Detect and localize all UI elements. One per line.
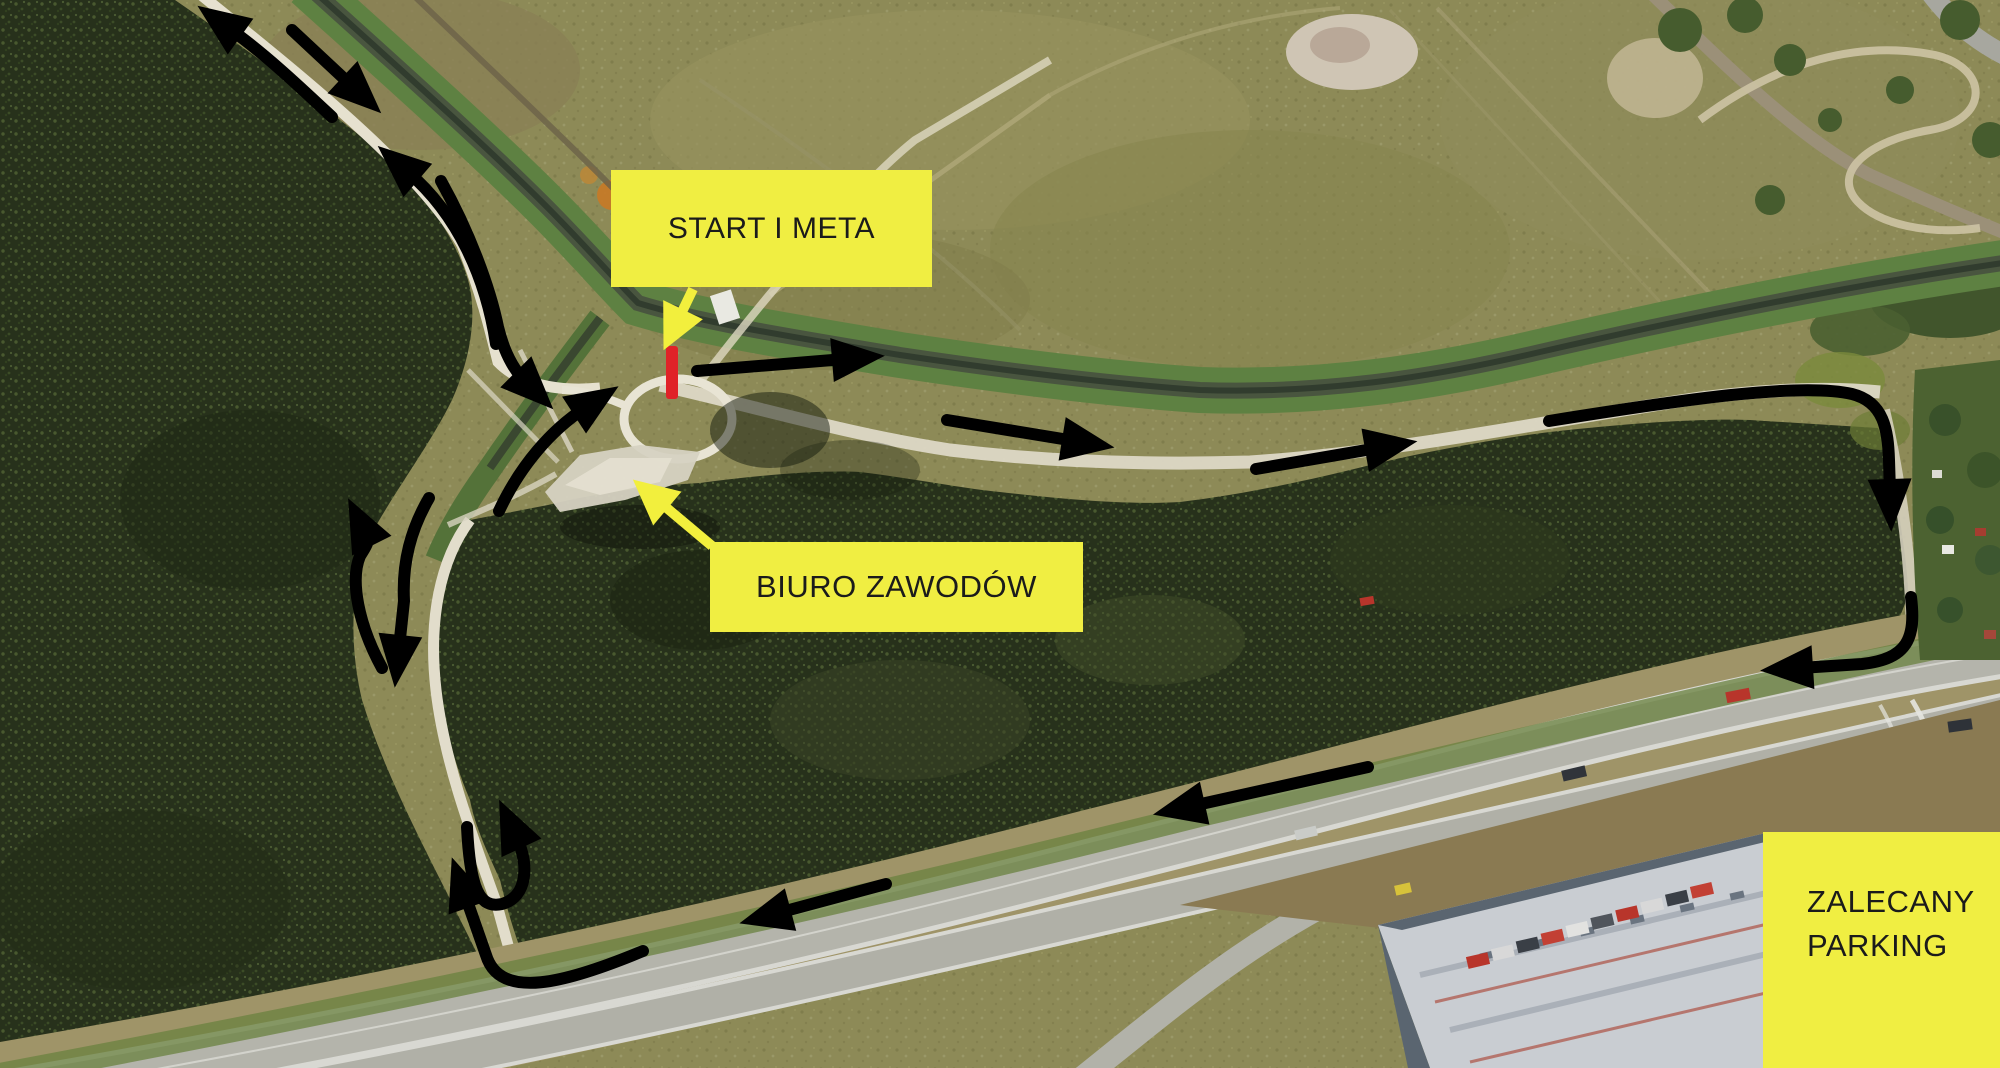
parking-label-line2: PARKING [1807, 924, 2000, 968]
parking-label-line1: ZALECANY [1807, 880, 2000, 924]
aerial-map [0, 0, 2000, 1068]
label-biuro-zawodow: BIURO ZAWODÓW [710, 542, 1083, 632]
start-finish-line [666, 346, 678, 399]
label-start-meta: START I META [611, 170, 932, 287]
allotment-gardens [1912, 360, 2000, 660]
label-zalecany-parking: ZALECANY PARKING [1763, 832, 2000, 1068]
race-course-map: START I META BIURO ZAWODÓW ZALECANY PARK… [0, 0, 2000, 1068]
